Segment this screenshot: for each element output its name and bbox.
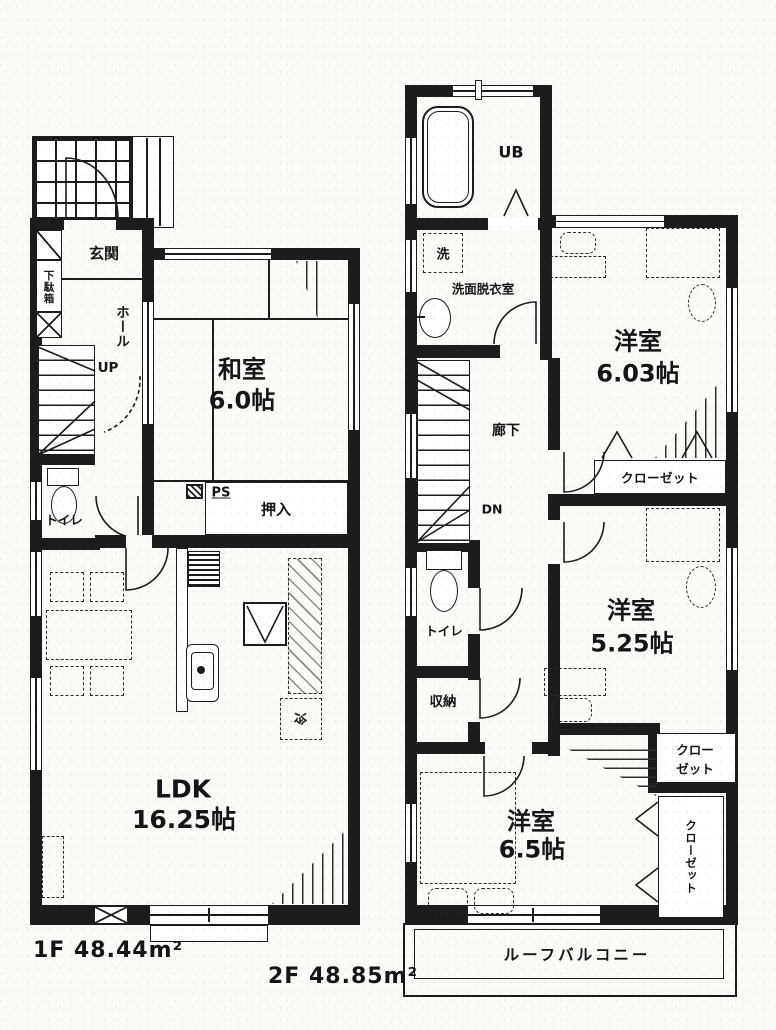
- curtain-fan-mark: [272, 830, 346, 904]
- window: [405, 568, 417, 616]
- window: [348, 304, 360, 430]
- porch-step-line: [146, 138, 148, 226]
- window: [30, 552, 42, 616]
- genkan-step-line: [62, 278, 142, 280]
- window: [405, 804, 417, 862]
- door-arc: [562, 520, 604, 564]
- sink-faucet: [197, 666, 205, 674]
- pipe-space-box: [186, 484, 203, 499]
- cushion: [552, 698, 592, 722]
- label-closet3: クローゼット: [683, 820, 699, 895]
- room-label-toilet-2f: トイレ: [425, 621, 463, 640]
- wall: [556, 494, 738, 506]
- stool: [686, 566, 716, 608]
- room-label-toilet-1f: トイレ: [45, 510, 83, 529]
- curtain-fan-mark: [566, 748, 656, 796]
- window: [453, 85, 533, 97]
- room-size-washitsu: 6.0帖: [209, 381, 276, 416]
- room-size-yoshitsu3: 6.5帖: [499, 830, 566, 865]
- room-label-yoshitsu2: 洋室: [607, 591, 655, 626]
- bed: [646, 508, 720, 562]
- stairs-winder-lines: [38, 345, 95, 455]
- bed: [646, 228, 720, 278]
- door-gap: [488, 218, 538, 230]
- label-roof-balcony: ルーフバルコニー: [504, 943, 651, 965]
- wall: [540, 228, 552, 360]
- label-fridge: 冷: [292, 712, 311, 725]
- window: [30, 482, 42, 520]
- toilet-bowl: [430, 570, 458, 612]
- wall: [532, 742, 560, 754]
- cushion: [560, 232, 596, 254]
- wall: [142, 424, 154, 548]
- door-arc: [96, 494, 140, 538]
- closet-chevron: [634, 800, 660, 838]
- wall: [540, 85, 552, 230]
- curtain-fan-mark: [296, 261, 320, 325]
- dining-chair: [90, 572, 124, 602]
- closet-chevron: [680, 430, 714, 460]
- cushion: [428, 888, 468, 914]
- dining-chair: [50, 666, 84, 696]
- door-arc: [478, 676, 522, 720]
- room-size-yoshitsu1: 6.03帖: [596, 354, 679, 389]
- room-label-genkan: 玄関: [89, 243, 119, 264]
- room-label-washroom: 洗面脱衣室: [452, 279, 515, 298]
- stairs-winder-lines: [417, 360, 470, 544]
- hood-v-mark: [243, 602, 287, 646]
- room-label-ub: UB: [498, 143, 523, 162]
- label-dn: DN: [482, 502, 503, 517]
- door-arc: [494, 300, 538, 346]
- window: [30, 678, 42, 770]
- room-size-ldk: 16.25帖: [132, 800, 236, 836]
- room-size-yoshitsu2: 5.25帖: [590, 624, 673, 659]
- window: [556, 215, 664, 228]
- shoe-cabinet-bottom: [36, 312, 62, 338]
- room-label-oshiire: 押入: [261, 499, 291, 520]
- desk: [550, 256, 606, 278]
- toilet-tank: [426, 550, 462, 570]
- door-arc: [478, 586, 522, 632]
- vent: [94, 906, 128, 924]
- tatami-line: [268, 260, 270, 318]
- wall: [468, 540, 480, 588]
- room-label-washitsu: 和室: [218, 350, 266, 385]
- entrance-door-arc: [64, 156, 120, 220]
- room-label-storage: 収納: [430, 690, 457, 710]
- window: [405, 138, 417, 204]
- window-tick: [532, 908, 534, 922]
- label-up: UP: [98, 360, 119, 376]
- toilet-tank: [47, 468, 79, 486]
- label-closet2-line2: ゼット: [676, 759, 714, 778]
- window: [165, 248, 271, 260]
- wall: [556, 723, 658, 735]
- door-arc: [124, 546, 172, 592]
- porch-step-line: [159, 138, 161, 226]
- door-arc: [562, 450, 604, 494]
- sliding-door: [142, 302, 154, 424]
- cushion: [474, 888, 514, 914]
- washbasin: [419, 298, 451, 338]
- area-label-2f: 2F 48.85m²: [268, 964, 418, 989]
- label-washer: 洗: [436, 244, 449, 263]
- bed: [420, 772, 516, 884]
- wall: [405, 345, 500, 358]
- dining-chair: [90, 666, 124, 696]
- stool: [688, 284, 716, 322]
- wall: [648, 783, 738, 793]
- wall: [468, 634, 480, 680]
- wall: [468, 722, 480, 754]
- label-hall: ホール: [111, 305, 131, 349]
- floor-plan-page: 玄関 下駄箱 ホール UP 和室 6.0帖 トイレ PS 押入 LDK 16.2…: [0, 0, 776, 1030]
- desk: [544, 668, 606, 696]
- sofa: [42, 836, 64, 898]
- label-ps: PS: [212, 486, 231, 501]
- window: [405, 414, 417, 478]
- cupboard: [288, 558, 322, 694]
- room-label-yoshitsu1: 洋室: [614, 322, 662, 357]
- window-tick: [208, 908, 210, 922]
- window: [726, 288, 738, 412]
- dining-chair: [50, 572, 84, 602]
- closet-chevron: [634, 866, 660, 904]
- stove: [188, 551, 220, 587]
- window-tick: [475, 80, 482, 100]
- wall: [548, 358, 560, 450]
- label-closet2-line1: クロー: [676, 740, 714, 759]
- closet-chevron: [600, 430, 634, 460]
- area-label-1f: 1F 48.44m²: [33, 938, 183, 963]
- dining-table: [46, 610, 132, 660]
- room-label-corridor: 廊下: [492, 420, 520, 440]
- wall: [142, 218, 154, 302]
- washbasin-handle: [413, 316, 425, 318]
- bathtub-inner: [427, 111, 469, 203]
- stair-direction-arc: [102, 374, 142, 434]
- folding-door-mark: [502, 188, 530, 218]
- porch-step: [132, 136, 174, 228]
- window: [726, 548, 738, 670]
- wall: [30, 538, 100, 550]
- label-getabako: 下駄箱: [42, 270, 57, 305]
- wall: [405, 85, 417, 925]
- shoe-cabinet-top: [36, 230, 62, 260]
- label-closet1: クローゼット: [621, 468, 699, 487]
- window: [405, 240, 417, 292]
